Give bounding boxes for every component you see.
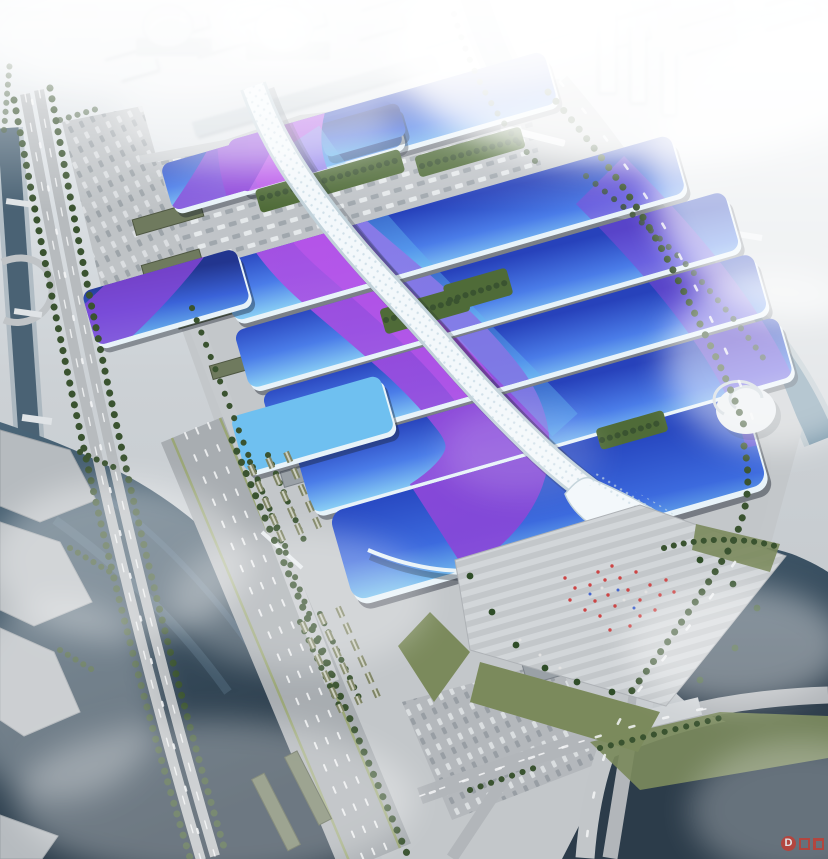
watermark-glyph bbox=[813, 838, 824, 850]
watermark-logo: D bbox=[781, 836, 796, 851]
watermark-glyph bbox=[799, 838, 810, 850]
watermark: D bbox=[781, 836, 824, 851]
aerial-rendering-exhibition-center: D bbox=[0, 0, 828, 859]
rendering-canvas bbox=[0, 0, 828, 859]
